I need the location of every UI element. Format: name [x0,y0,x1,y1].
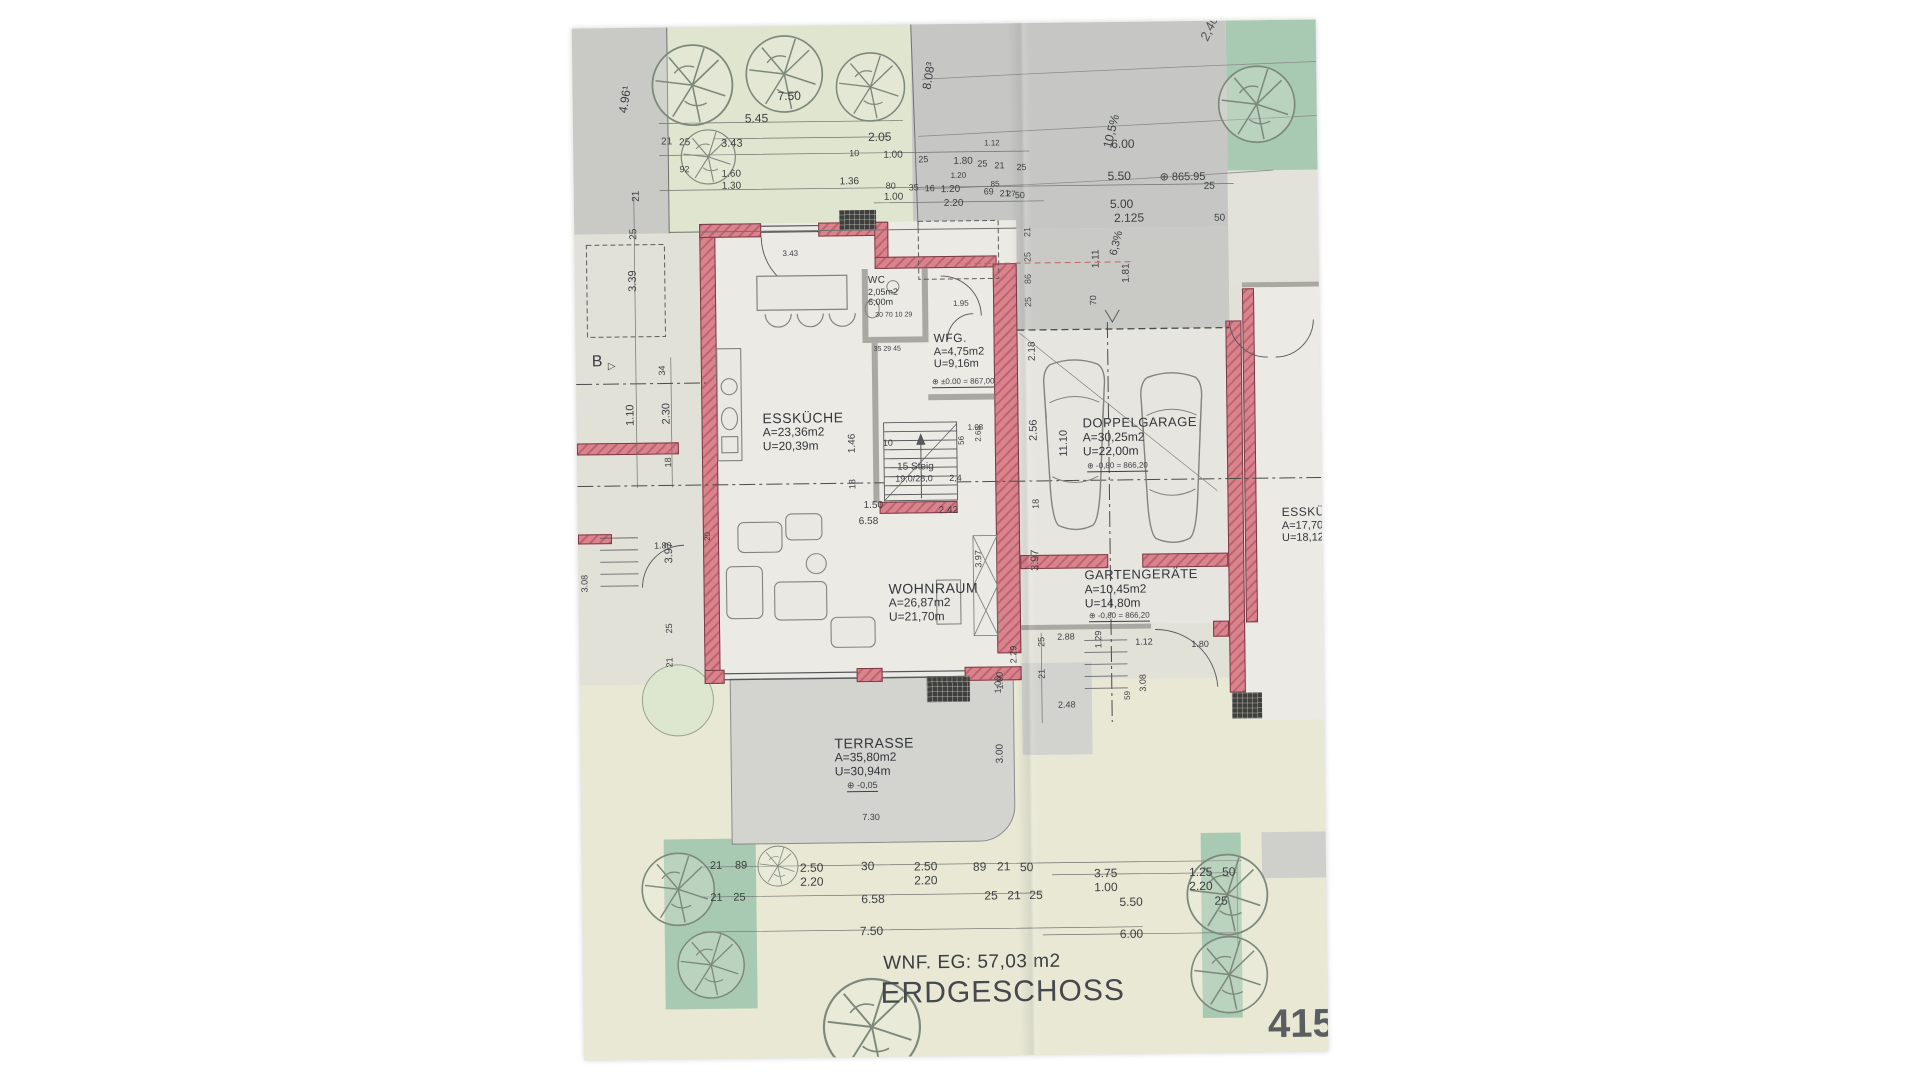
dim-label: 2.48 [1058,700,1076,709]
dim-label: 1.46 [848,434,858,454]
dim-label: 1.25 [1189,866,1213,878]
room-label-wc: WC2,05m26,00m [868,275,898,308]
dim-label: 18 [1032,499,1041,509]
room-stat: U=30,94m [835,764,915,779]
room-stat: 2,05m2 [868,286,898,297]
dim-label: 59 [1124,691,1132,700]
room-stat: U=22,00m [1083,444,1198,459]
dim-label: 50 [1015,191,1025,200]
dim-label: 1.10 [625,404,636,426]
sheet-number: 415 [1268,1001,1329,1047]
dim-label: 16 [925,184,935,193]
dim-label: 50 [1020,861,1034,873]
dim-label: 27 [1007,190,1016,198]
dim-label: 6.58 [861,893,885,905]
wnf-area-text: WNF. EG: 57,03 m2 [883,951,1061,975]
dim-label: 56 [958,436,966,445]
dim-label: 2.18 [1028,341,1038,361]
annotation-layer: WC2,05m26,00mWFG.A=4,75m2U=9,16mESSKÜCHE… [572,19,1329,1060]
dim-label: 1.11 [1091,249,1101,268]
dim-label: 1.60 [721,170,741,180]
dim-label: 1.30 [722,182,742,192]
dim-label: 3.75 [1094,867,1118,879]
dim-label: 4.96¹ [617,85,633,114]
dim-label: 1.12 [984,139,1000,147]
dim-label: 25 [984,889,998,901]
dim-label: 3.08 [580,575,589,593]
room-stat: U=9,16m [934,358,985,371]
dim-label: 1.20 [951,172,967,180]
dim-label: 21 [632,191,642,202]
dim-label: 25 [1204,182,1215,192]
dim-label: 10 [849,149,859,158]
dim-label: 25 [1016,163,1026,172]
dim-label: 21 [997,860,1011,872]
dim-label: 1.80 [953,157,973,167]
room-stat: U=14,80m [1085,596,1199,611]
dim-label: 21 [1007,889,1021,901]
dim-label: ▷ [608,362,616,372]
dim-label: 15 Steig [897,462,934,472]
dim-label: 35 [909,183,919,192]
room-title: TERRASSE [834,734,914,751]
dim-label: 2.29 [1009,646,1018,664]
dim-label: 2.88 [1057,632,1075,641]
dim-label: 8.08³ [920,61,936,90]
dim-label: 21 [1023,227,1032,237]
room-label-doppelgarage: DOPPELGARAGEA=30,25m2U=22,00m [1082,415,1197,459]
dim-label: 6,3% [1109,230,1126,257]
dim-label: 2.125 [1114,212,1144,224]
room-label-esskueche-nachbar: ESSKÜCHEA=17,70m2U=18,12m [1282,505,1329,545]
dim-label: 85 [991,180,1000,188]
dim-label: 25 [1037,637,1046,647]
dim-label: 21 [1038,669,1047,679]
dim-label: 5.50 [1107,170,1131,182]
dim-label: 2.20 [944,199,964,209]
dim-label: 10 [883,439,893,448]
dim-label: 21 [661,137,672,147]
room-stat: U=20,39m [763,439,844,454]
dim-label: 6.58 [859,517,879,527]
room-label-wfg: WFG.A=4,75m2U=9,16m [933,332,984,372]
dim-label: 2,4 [949,474,962,483]
dim-label: 2.50 [800,862,824,874]
room-stat: A=30,25m2 [1083,430,1198,445]
dim-label: 5.00 [1110,198,1134,210]
dim-label: 2.50 [914,860,938,872]
dim-label: 25 [1023,252,1032,262]
dim-label: ⊕ -0,80 = 866,20 [1087,462,1148,473]
dim-label: 1.36 [840,177,860,187]
room-stat: U=21,70m [889,610,979,625]
dim-label: 30 70 10 29 [875,311,912,318]
dim-label: 3.43 [782,250,798,258]
dim-label: 1.80 [1191,640,1209,649]
dim-label: B [592,354,603,370]
dim-label: 7.50 [777,90,801,102]
room-title: WFG. [933,332,984,346]
screenshot-root: WC2,05m26,00mWFG.A=4,75m2U=9,16mESSKÜCHE… [0,0,1920,1080]
dim-label: 1.12 [1135,638,1153,647]
dim-label: 20 [704,532,712,541]
dim-label: 1.29 [1094,631,1103,649]
dim-label: ⊕ 865.95 [1160,172,1206,184]
dim-label: 25 [977,160,987,169]
dim-label: 5.50 [1119,896,1143,908]
dim-label: 21 [710,893,722,904]
dim-label: 2,40 [1198,19,1220,42]
room-stat: A=17,70m2 [1282,519,1328,532]
dim-label: 3.43 [721,139,743,150]
room-title: WC [868,275,898,287]
dim-label: 1.95 [953,300,969,308]
dim-label: 19,0/28,0 [895,474,933,483]
dim-label: 89 [973,861,987,873]
dim-label: 89 [735,861,747,872]
dim-label: 86 [1024,274,1033,284]
dim-label: 25 [665,623,674,633]
room-title: ESSKÜCHE [762,409,843,426]
dim-label: 21 [710,861,722,872]
floor-title: ERDGESCHOSS [880,974,1125,1011]
dim-label: 80 [886,182,896,191]
dim-label: 25 [629,229,639,240]
dim-label: 92 [679,165,689,174]
dim-label: 1.00 [883,151,903,161]
dim-label: 7.30 [862,813,880,822]
dim-label: 2.05 [868,131,892,143]
dim-label: 1.81 [1122,263,1132,283]
dim-label: 69 [984,187,994,196]
dim-label: 2.20 [914,874,938,886]
dim-label: 3.00 [995,744,1005,764]
dim-label: 50 [1222,866,1236,878]
room-stat: A=4,75m2 [934,345,985,358]
dim-label: 34 [658,365,667,375]
dim-label: 3.97 [1030,549,1041,571]
dim-label: 1.20 [941,185,961,195]
dim-label: 25 [1214,895,1228,907]
room-stat: A=10,45m2 [1085,582,1199,597]
dim-label: 1.00 [1094,881,1118,893]
dim-label: 11.10 [1059,430,1070,457]
dim-label: 3.97 [664,542,675,564]
dim-label: 1.00 [884,193,904,203]
dim-label: 3.39 [628,270,639,292]
dim-label: 25 [1024,297,1033,307]
dim-label: 3.97 [974,550,983,568]
dim-label: 18 [848,479,857,489]
room-label-terrasse: TERRASSEA=35,80m2U=30,94m [834,734,914,779]
dim-label: ⊕ -0,05 [847,781,878,792]
dim-label: 6.00 [1120,928,1144,940]
room-label-wohnraum: WOHNRAUMA=26,87m2U=21,70m [888,580,978,625]
room-label-esskueche: ESSKÜCHEA=23,36m2U=20,39m [762,409,844,454]
room-stat: U=18,12m [1282,532,1328,545]
dim-label: 25 [679,138,690,148]
dim-label: 21 [665,657,674,667]
dim-label: 35 29 45 [874,346,901,353]
dim-label: 1.50 [864,501,884,511]
dim-label: 7.50 [860,925,884,937]
dim-label: 3.08 [1139,674,1148,692]
dim-label: 2.56 [1029,419,1040,441]
dim-label: 2.68 [975,426,983,442]
dim-label: 2.42 [939,506,959,516]
dim-label: 18 [664,457,673,467]
dim-label: ⊕ ±0.00 = 867,00 [932,377,995,388]
dim-label: 25 [733,893,745,904]
dim-label: 5.45 [745,112,769,124]
dim-label: 25 [1029,889,1043,901]
dim-label: 21 [994,161,1004,170]
dim-label: 70 [1089,295,1098,305]
dim-label: 1.00 [994,676,1003,694]
dim-label: ⊕ -0,80 = 866,20 [1089,612,1150,623]
dim-label: 50 [1214,214,1225,224]
dim-label: 30 [861,860,875,872]
dim-label: 2.20 [1189,880,1213,892]
room-title: ESSKÜCHE [1282,505,1329,520]
room-stat: 6,00m [868,296,898,307]
dim-label: 2.20 [800,876,824,888]
floor-plan-photo: WC2,05m26,00mWFG.A=4,75m2U=9,16mESSKÜCHE… [572,19,1329,1060]
room-label-gartengeraete: GARTENGERÄTEA=10,45m2U=14,80m [1084,567,1198,611]
room-title: WOHNRAUM [888,580,978,597]
dim-label: 2.30 [661,403,672,425]
dim-label: 25 [918,155,928,164]
